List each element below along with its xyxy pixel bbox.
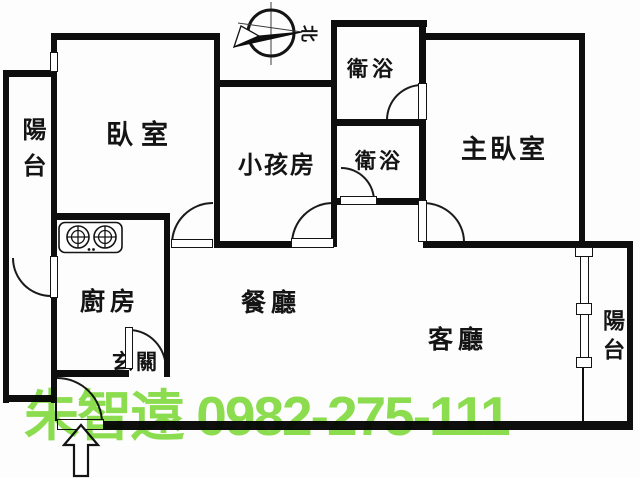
room-label-dining: 餐廳 <box>241 283 301 319</box>
wall-segment <box>51 213 170 220</box>
floor-plan: 北 陽台 臥室 小孩房 衛浴 衛浴 主臥室 廚房 餐廳 客廳 玄關 陽台 朱智遠… <box>0 0 640 478</box>
window-symbol <box>576 357 592 368</box>
wall-segment <box>331 20 427 27</box>
door-leaf <box>418 83 427 120</box>
agent-name: 朱智遠 <box>24 385 183 447</box>
wall-segment <box>51 33 220 40</box>
door-leaf <box>125 327 133 369</box>
room-label-balcony-left: 陽台 <box>14 117 49 189</box>
wall-segment <box>51 370 129 377</box>
wall-segment <box>331 119 425 126</box>
wall-segment <box>51 72 57 257</box>
wall-segment <box>419 118 426 202</box>
wall-segment <box>214 33 220 247</box>
door-swing-arc <box>12 258 51 297</box>
agent-phone: 0982-275-111 <box>196 385 508 447</box>
wall-segment <box>3 70 57 77</box>
wall-segment <box>579 33 585 248</box>
wall-segment <box>164 213 170 377</box>
room-label-bedroom: 臥室 <box>106 113 176 152</box>
north-label: 北 <box>298 25 323 42</box>
wall-segment <box>214 80 337 87</box>
wall-segment <box>214 241 292 248</box>
door-swing-arc <box>129 329 167 369</box>
wall-segment <box>3 70 9 403</box>
door-swing-arc <box>171 202 213 244</box>
room-label-master-bedroom: 主臥室 <box>461 129 548 166</box>
wall-segment <box>419 20 426 84</box>
agent-watermark: 朱智遠 0982-275-111 <box>24 386 640 447</box>
door-leaf <box>291 238 334 248</box>
window-symbol <box>575 247 593 257</box>
room-label-living: 客廳 <box>428 320 488 356</box>
wall-segment <box>423 33 585 40</box>
window-symbol <box>576 303 592 315</box>
door-leaf <box>418 200 427 242</box>
room-label-kitchen: 廚房 <box>80 282 140 318</box>
door-leaf <box>340 196 377 205</box>
room-label-bathroom-lower: 衛浴 <box>355 145 403 175</box>
wall-segment <box>423 241 585 248</box>
window-symbol <box>50 52 58 72</box>
door-leaf <box>50 256 58 298</box>
door-leaf <box>171 239 213 248</box>
room-label-kids-room: 小孩房 <box>238 145 316 180</box>
room-label-balcony-right: 陽台 <box>596 309 628 367</box>
door-swing-arc <box>386 84 422 120</box>
two-burner-stove-icon <box>58 221 124 255</box>
door-swing-arc <box>423 202 465 242</box>
room-label-bathroom-upper: 衛浴 <box>347 53 397 83</box>
